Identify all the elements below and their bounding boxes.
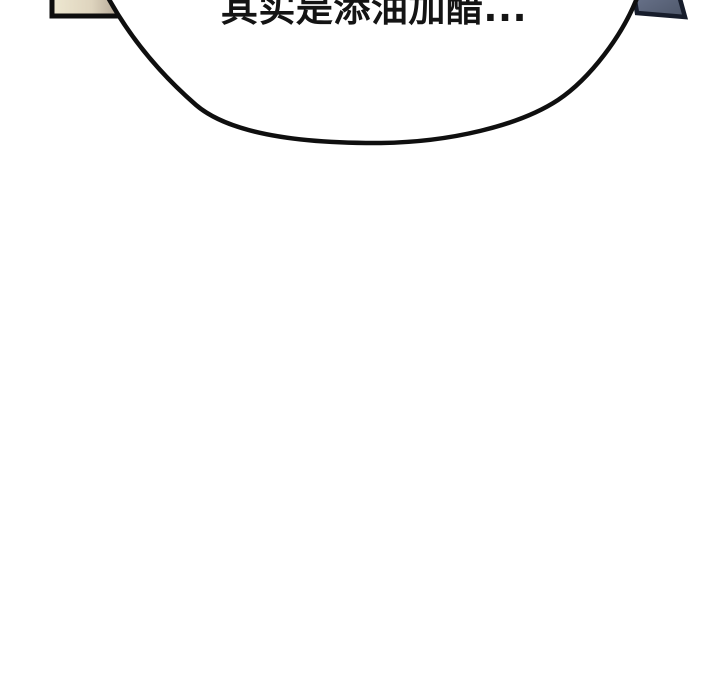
panel-top-artwork (0, 0, 720, 200)
comic-panel: 其实是添油加醋... (0, 0, 720, 700)
speech-text: 其实是添油加醋... (221, 0, 527, 27)
panel-corner-right (633, 0, 685, 17)
